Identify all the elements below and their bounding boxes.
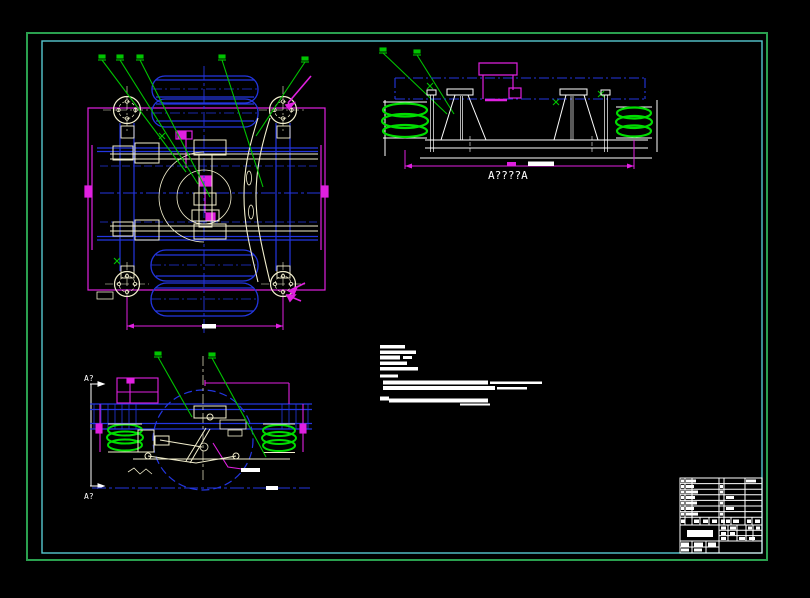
- side-groundline-blob: [266, 486, 278, 490]
- notes-item-list: [380, 345, 418, 378]
- outer-border: [27, 33, 767, 560]
- side-view: A? A?: [84, 352, 312, 501]
- drawing-frame: [27, 33, 767, 560]
- section-dimension: A????A: [405, 140, 634, 182]
- section-cut-markers: A? A?: [84, 374, 104, 501]
- green-cross-marks: [114, 133, 165, 264]
- section-label: A????A: [488, 169, 528, 182]
- section-dim-blob-white: [528, 162, 554, 167]
- plan-dimension: [127, 297, 283, 330]
- section-view: A????A: [379, 48, 657, 182]
- side-label-blob: [241, 468, 260, 472]
- air-spring-bellows-left: [382, 104, 428, 138]
- drawing-title-blob: [687, 530, 713, 537]
- plan-view: [85, 55, 328, 333]
- title-block: [680, 478, 762, 553]
- section-magenta-bracket: [479, 63, 521, 100]
- green-cross-marks: [427, 83, 604, 105]
- inner-border: [42, 41, 762, 553]
- section-marker-top: A?: [84, 374, 94, 383]
- section-marker-bottom: A?: [84, 492, 94, 501]
- plan-dim-text-blob: [202, 324, 216, 329]
- notes-paragraph-2: [380, 397, 490, 406]
- notes-paragraph-1: [383, 381, 542, 391]
- cad-canvas: A????A A? A?: [0, 0, 810, 598]
- section-dim-blob-magenta: [507, 162, 516, 166]
- cad-drawing: A????A A? A?: [0, 0, 810, 598]
- air-spring-bellows-right: [616, 108, 652, 137]
- technical-notes: [380, 345, 542, 406]
